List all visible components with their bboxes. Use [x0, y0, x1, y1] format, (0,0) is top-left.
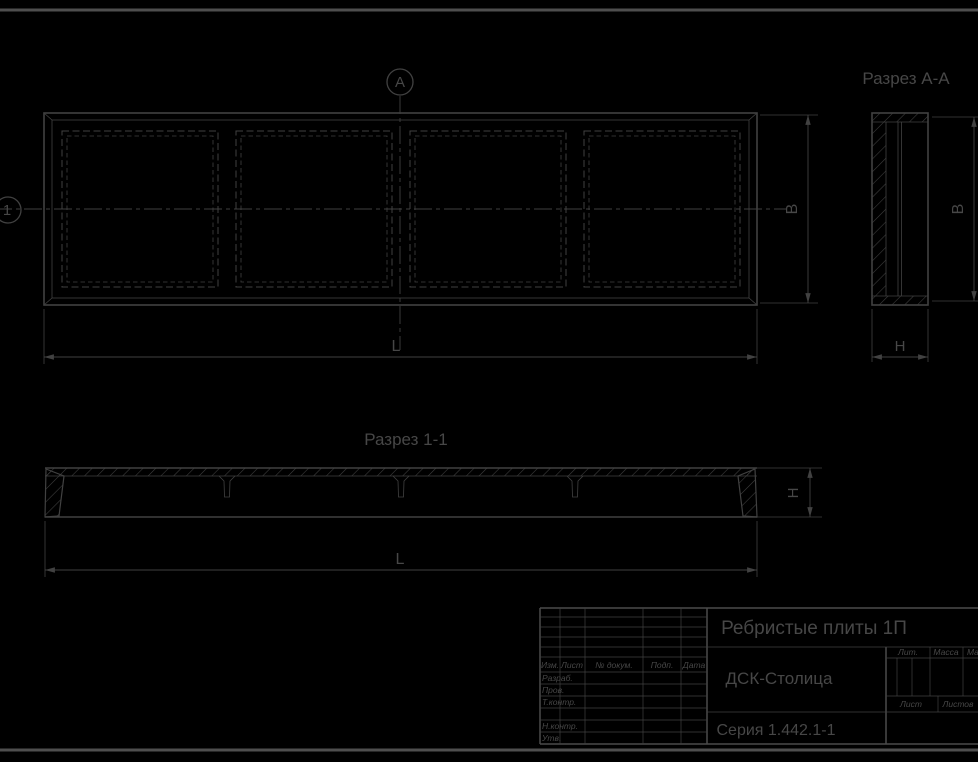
section-marker-a-label: А: [395, 74, 405, 91]
section-11-dim-h-label: Н: [785, 488, 802, 499]
label-lit: Лит.: [897, 647, 918, 657]
section-11-view: Разрез 1-1 Н L: [45, 430, 822, 577]
col-doc: № докум.: [595, 660, 632, 670]
section-marker-a: А: [387, 69, 413, 95]
section-11-flange-hatch: [45, 468, 757, 476]
role-ncontrol: Н.контр.: [542, 721, 578, 731]
role-approved: Утв.: [541, 733, 561, 743]
section-aa-dim-h: Н: [872, 309, 928, 362]
document-designation: Серия 1.442.1-1: [716, 722, 835, 739]
label-mass: Масса: [933, 647, 958, 657]
section-aa-dim-b-label: В: [950, 204, 967, 215]
label-sheet: Лист: [899, 699, 922, 709]
section-aa-top-flange-hatch: [872, 113, 928, 122]
plan-view: А 1 В L: [0, 69, 818, 364]
section-11-title: Разрез 1-1: [364, 430, 447, 449]
section-aa-title: Разрез А-А: [862, 69, 950, 88]
section-11-dim-l-label: L: [396, 551, 405, 568]
section-aa-dim-b: В: [932, 117, 978, 301]
section-aa-dim-h-label: Н: [895, 338, 906, 355]
plan-dim-l-label: L: [392, 338, 401, 355]
organization-name: ДСК-Столица: [726, 669, 833, 688]
role-tcontrol: Т.контр.: [542, 697, 576, 707]
plan-dim-b-label: В: [784, 204, 801, 215]
section-11-dim-l: L: [45, 521, 757, 577]
section-aa-rib-hatch: [872, 122, 886, 296]
axis-marker-1-label: 1: [3, 202, 11, 219]
section-11-right-end-rib: [738, 469, 757, 517]
col-podp: Подп.: [651, 660, 674, 670]
axis-marker-1: 1: [0, 197, 21, 223]
section-aa-view: Разрез А-А В Н: [862, 69, 978, 362]
col-data: Дата: [682, 660, 706, 670]
section-11-left-end-rib: [45, 469, 64, 517]
title-block-left-columns: [560, 608, 681, 744]
section-11-rib-notches: [219, 476, 583, 497]
section-aa-bottom-flange-hatch: [872, 296, 928, 305]
label-scale: Масштаб: [967, 647, 978, 657]
plan-dim-l: L: [44, 309, 757, 364]
col-izm: Изм.: [541, 660, 559, 670]
role-developed: Разраб.: [542, 673, 573, 683]
title-block: Ребристые плиты 1П ДСК-Столица Серия 1.4…: [540, 608, 978, 744]
product-name: Ребристые плиты 1П: [721, 618, 907, 639]
role-checked: Пров.: [542, 685, 564, 695]
label-sheets: Листов: [942, 699, 975, 709]
engineering-drawing: А 1 В L Разрез А-А В: [0, 0, 978, 762]
col-list: Лист: [560, 660, 583, 670]
section-11-dim-h: Н: [757, 468, 822, 517]
